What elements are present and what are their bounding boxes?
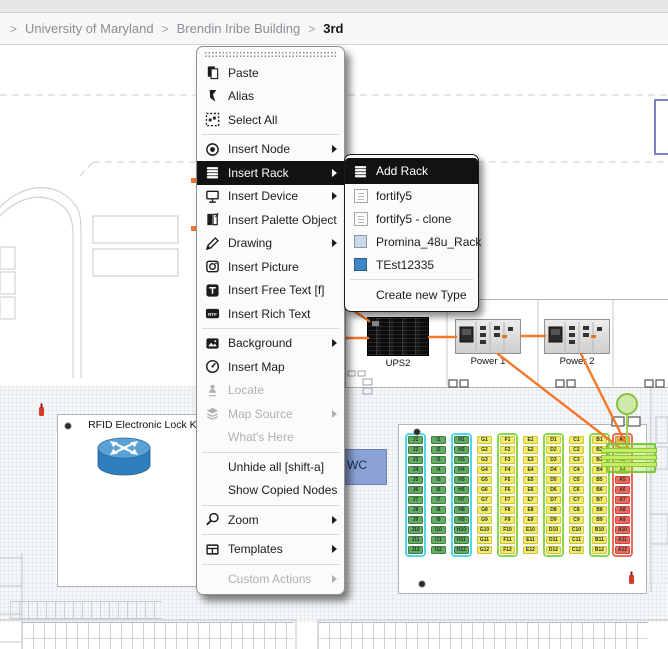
layers-icon bbox=[205, 406, 220, 421]
person-pin-icon bbox=[205, 383, 220, 398]
rack-cell[interactable]: C9 bbox=[569, 516, 584, 524]
no-icon bbox=[205, 483, 220, 498]
submenu-arrow-icon bbox=[332, 575, 337, 583]
rack-cell[interactable]: A12 bbox=[615, 546, 630, 554]
rack-cell[interactable]: D12 bbox=[546, 546, 561, 554]
rack-cell[interactable]: A8 bbox=[615, 506, 630, 514]
menu-separator bbox=[202, 564, 339, 565]
rack-cell[interactable]: E10 bbox=[523, 526, 538, 534]
rack-cell[interactable]: E7 bbox=[523, 496, 538, 504]
rack-cell[interactable]: C6 bbox=[569, 486, 584, 494]
rack-cell[interactable]: E12 bbox=[523, 546, 538, 554]
test-image-icon bbox=[353, 188, 368, 203]
color-swatch-icon bbox=[353, 257, 368, 272]
rack-column-H[interactable]: H1H2H3H4H5H6H7H8H9H10H11H12 bbox=[451, 433, 472, 557]
menu-item-insert-picture[interactable]: Insert Picture bbox=[197, 255, 344, 279]
breadcrumb-item-floor[interactable]: 3rd bbox=[323, 21, 343, 36]
rack-cell[interactable]: H4 bbox=[454, 466, 469, 474]
rack-cell[interactable]: I3 bbox=[431, 456, 446, 464]
rack-cell[interactable]: F4 bbox=[500, 466, 515, 474]
insert-rack-submenu: Add Rack fortify5 fortify5 - clone Promi… bbox=[344, 154, 479, 312]
rack-cell[interactable]: I6 bbox=[431, 486, 446, 494]
rack-cell[interactable]: I12 bbox=[431, 546, 446, 554]
menu-item-background[interactable]: Background bbox=[197, 332, 344, 356]
rack-cell[interactable]: B8 bbox=[592, 506, 607, 514]
rack-cell[interactable]: J11 bbox=[408, 536, 423, 544]
text-icon bbox=[205, 283, 220, 298]
menu-item-templates[interactable]: Templates bbox=[197, 538, 344, 562]
rack-cell[interactable]: B6 bbox=[592, 486, 607, 494]
rack-cell[interactable]: G11 bbox=[477, 536, 492, 544]
compass-icon bbox=[205, 359, 220, 374]
rack-cell[interactable]: F5 bbox=[500, 476, 515, 484]
device-power1[interactable] bbox=[455, 319, 521, 354]
submenu-arrow-icon bbox=[332, 516, 337, 524]
rack-cell[interactable]: D1 bbox=[546, 436, 561, 444]
rack-cell[interactable]: C7 bbox=[569, 496, 584, 504]
menu-item-insert-palette-object[interactable]: Insert Palette Object bbox=[197, 208, 344, 232]
rack-column-I[interactable]: I1I2I3I4I5I6I7I8I9I10I11I12 bbox=[428, 433, 449, 557]
rack-cell[interactable]: E2 bbox=[523, 446, 538, 454]
desk-band bbox=[22, 622, 294, 649]
menu-drag-handle[interactable] bbox=[204, 51, 337, 58]
rack-cell[interactable]: G2 bbox=[477, 446, 492, 454]
menu-item-locate: Locate bbox=[197, 379, 344, 403]
submenu-item-fortify5-clone[interactable]: fortify5 - clone bbox=[345, 207, 478, 230]
select-all-icon bbox=[205, 112, 220, 127]
menu-item-show-copied-nodes[interactable]: Show Copied Nodes bbox=[197, 479, 344, 503]
breadcrumb: > University of Maryland > Brendin Iribe… bbox=[0, 13, 668, 45]
menu-item-alias[interactable]: Alias bbox=[197, 85, 344, 109]
rack-cell[interactable]: H11 bbox=[454, 536, 469, 544]
rack-cell[interactable]: B11 bbox=[592, 536, 607, 544]
rack-cell[interactable]: G9 bbox=[477, 516, 492, 524]
rack-cell[interactable]: I1 bbox=[431, 436, 446, 444]
device-power2[interactable] bbox=[544, 319, 610, 354]
rack-cell[interactable]: D8 bbox=[546, 506, 561, 514]
rack-cell[interactable]: J6 bbox=[408, 486, 423, 494]
menu-item-unhide-all[interactable]: Unhide all [shift-a] bbox=[197, 455, 344, 479]
rack-cell[interactable]: F2 bbox=[500, 446, 515, 454]
rack-cell[interactable]: C5 bbox=[569, 476, 584, 484]
rack-cell[interactable]: G1 bbox=[477, 436, 492, 444]
rack-cell[interactable]: H3 bbox=[454, 456, 469, 464]
breadcrumb-chevron-icon: > bbox=[308, 22, 315, 36]
menu-separator bbox=[350, 279, 473, 280]
rack-cell[interactable]: D4 bbox=[546, 466, 561, 474]
window-icon bbox=[205, 542, 220, 557]
rack-cell[interactable]: H2 bbox=[454, 446, 469, 454]
alias-icon bbox=[205, 89, 220, 104]
breadcrumb-item-site[interactable]: University of Maryland bbox=[25, 21, 154, 36]
image-icon bbox=[205, 336, 220, 351]
rack-cell[interactable]: G3 bbox=[477, 456, 492, 464]
test-image-icon bbox=[353, 211, 368, 226]
rack-cell[interactable]: J1 bbox=[408, 436, 423, 444]
rack-cell[interactable]: E11 bbox=[523, 536, 538, 544]
menu-separator bbox=[202, 328, 339, 329]
rack-cell[interactable]: H1 bbox=[454, 436, 469, 444]
submenu-arrow-icon bbox=[332, 339, 337, 347]
rack-cell[interactable]: H10 bbox=[454, 526, 469, 534]
menu-item-drawing[interactable]: Drawing bbox=[197, 232, 344, 256]
no-icon bbox=[205, 571, 220, 586]
rack-cell[interactable]: C2 bbox=[569, 446, 584, 454]
rack-cell[interactable]: G5 bbox=[477, 476, 492, 484]
rack-column-D[interactable]: D1D2D3D4D5D6D7D8D9D10D11D12 bbox=[543, 433, 564, 557]
device-ups[interactable] bbox=[367, 317, 429, 356]
device-label: UPS2 bbox=[367, 358, 429, 369]
menu-separator bbox=[202, 134, 339, 135]
locker-row bbox=[10, 601, 162, 619]
rack-cell[interactable]: I11 bbox=[431, 536, 446, 544]
rack-cell[interactable]: C3 bbox=[569, 456, 584, 464]
rack-cell[interactable]: C10 bbox=[569, 526, 584, 534]
ups-display bbox=[372, 321, 379, 326]
rack-cell[interactable]: H9 bbox=[454, 516, 469, 524]
device-icon bbox=[205, 189, 220, 204]
power-panel-art bbox=[545, 320, 609, 353]
rack-cell[interactable]: B4 bbox=[592, 466, 607, 474]
no-icon bbox=[353, 288, 368, 303]
rack-grid: J1J2J3J4J5J6J7J8J9J10J11J12I1I2I3I4I5I6I… bbox=[405, 433, 633, 557]
rack-cell[interactable]: G12 bbox=[477, 546, 492, 554]
rack-cell[interactable]: F1 bbox=[500, 436, 515, 444]
submenu-item-add-rack[interactable]: Add Rack bbox=[345, 158, 478, 184]
rack-icon bbox=[205, 165, 220, 180]
rack-cell[interactable]: F3 bbox=[500, 456, 515, 464]
rack-cell[interactable]: C8 bbox=[569, 506, 584, 514]
submenu-arrow-icon bbox=[332, 239, 337, 247]
rack-cell[interactable]: G6 bbox=[477, 486, 492, 494]
rack-cell[interactable]: D11 bbox=[546, 536, 561, 544]
menu-item-insert-device[interactable]: Insert Device bbox=[197, 185, 344, 209]
rack-cell[interactable]: H8 bbox=[454, 506, 469, 514]
rack-cell[interactable]: D10 bbox=[546, 526, 561, 534]
rack-cell[interactable]: B5 bbox=[592, 476, 607, 484]
rack-cell[interactable]: J9 bbox=[408, 516, 423, 524]
rack-cell[interactable]: G7 bbox=[477, 496, 492, 504]
rack-cell[interactable]: D6 bbox=[546, 486, 561, 494]
submenu-item-test12335[interactable]: TEst12335 bbox=[345, 253, 478, 276]
rack-cell[interactable]: I4 bbox=[431, 466, 446, 474]
rack-cell[interactable]: B10 bbox=[592, 526, 607, 534]
menu-item-insert-free-text[interactable]: Insert Free Text [f] bbox=[197, 279, 344, 303]
submenu-arrow-icon bbox=[332, 410, 337, 418]
router-icon[interactable] bbox=[92, 432, 156, 486]
rack-cell[interactable]: F9 bbox=[500, 516, 515, 524]
menu-item-insert-rich-text[interactable]: RTF Insert Rich Text bbox=[197, 302, 344, 326]
paste-icon bbox=[205, 65, 220, 80]
rtf-icon: RTF bbox=[205, 306, 220, 321]
menu-separator bbox=[202, 534, 339, 535]
rack-cell[interactable]: D9 bbox=[546, 516, 561, 524]
rack-cell[interactable]: G4 bbox=[477, 466, 492, 474]
submenu-item-create-new-type[interactable]: Create new Type bbox=[345, 282, 478, 308]
node-icon bbox=[205, 142, 220, 157]
rack-column-J[interactable]: J1J2J3J4J5J6J7J8J9J10J11J12 bbox=[405, 433, 426, 557]
menu-item-zoom[interactable]: Zoom bbox=[197, 508, 344, 532]
submenu-arrow-icon bbox=[332, 545, 337, 553]
rack-cell[interactable]: A5 bbox=[615, 476, 630, 484]
palette-icon bbox=[205, 212, 220, 227]
rack-cell[interactable]: I7 bbox=[431, 496, 446, 504]
menu-item-whats-here: What's Here bbox=[197, 426, 344, 450]
rack-icon bbox=[353, 164, 368, 179]
rack-cell[interactable]: J12 bbox=[408, 546, 423, 554]
rack-cell[interactable]: B12 bbox=[592, 546, 607, 554]
menu-item-insert-map[interactable]: Insert Map bbox=[197, 355, 344, 379]
rack-cell[interactable]: A10 bbox=[615, 526, 630, 534]
submenu-arrow-icon bbox=[332, 192, 337, 200]
rack-column-F[interactable]: F1F2F3F4F5F6F7F8F9F10F11F12 bbox=[497, 433, 518, 557]
rack-cell[interactable]: H5 bbox=[454, 476, 469, 484]
rack-cell[interactable]: C1 bbox=[569, 436, 584, 444]
device-label: Power 1 bbox=[455, 356, 521, 367]
rack-cell[interactable]: I10 bbox=[431, 526, 446, 534]
menu-separator bbox=[202, 505, 339, 506]
context-menu: Paste Alias Select All Insert Node Inser… bbox=[196, 46, 345, 595]
rack-cell[interactable]: C12 bbox=[569, 546, 584, 554]
rack-cell[interactable]: J10 bbox=[408, 526, 423, 534]
rack-cell[interactable]: I5 bbox=[431, 476, 446, 484]
menu-item-select-all[interactable]: Select All bbox=[197, 108, 344, 132]
rack-cell[interactable]: D5 bbox=[546, 476, 561, 484]
color-swatch-icon bbox=[353, 234, 368, 249]
no-icon bbox=[205, 430, 220, 445]
rack-cell[interactable]: F8 bbox=[500, 506, 515, 514]
rack-cell[interactable]: A6 bbox=[615, 486, 630, 494]
rack-cell[interactable]: B9 bbox=[592, 516, 607, 524]
rack-cell[interactable]: D7 bbox=[546, 496, 561, 504]
rack-cell[interactable]: J4 bbox=[408, 466, 423, 474]
rack-cell[interactable]: C4 bbox=[569, 466, 584, 474]
rack-cell[interactable]: C11 bbox=[569, 536, 584, 544]
rack-column-E[interactable]: E1E2E3E4E5E6E7E8E9E10E11E12 bbox=[520, 433, 541, 557]
selection-drag-handle[interactable] bbox=[616, 393, 638, 415]
rack-cell[interactable]: H7 bbox=[454, 496, 469, 504]
submenu-item-promina-rack[interactable]: Promina_48u_Rack bbox=[345, 230, 478, 253]
rack-cell[interactable]: E4 bbox=[523, 466, 538, 474]
rack-cell[interactable]: J5 bbox=[408, 476, 423, 484]
rack-cell[interactable]: E3 bbox=[523, 456, 538, 464]
rack-cell[interactable]: G10 bbox=[477, 526, 492, 534]
magnifier-icon bbox=[205, 512, 220, 527]
menu-item-insert-node[interactable]: Insert Node bbox=[197, 138, 344, 162]
rack-cell[interactable]: F10 bbox=[500, 526, 515, 534]
device-label: Power 2 bbox=[544, 356, 610, 367]
rack-cell[interactable]: J7 bbox=[408, 496, 423, 504]
rack-cell[interactable]: E9 bbox=[523, 516, 538, 524]
rack-cell[interactable]: J3 bbox=[408, 456, 423, 464]
wc-room-label: WC bbox=[347, 458, 367, 472]
menu-item-map-source: Map Source bbox=[197, 402, 344, 426]
menu-separator bbox=[202, 452, 339, 453]
breadcrumb-item-building[interactable]: Brendin Iribe Building bbox=[177, 21, 301, 36]
rack-cell[interactable]: G8 bbox=[477, 506, 492, 514]
breadcrumb-chevron-icon: > bbox=[10, 22, 17, 36]
rack-cell[interactable]: D3 bbox=[546, 456, 561, 464]
rack-cell[interactable]: A7 bbox=[615, 496, 630, 504]
rack-cell[interactable]: F11 bbox=[500, 536, 515, 544]
rack-cell[interactable]: F6 bbox=[500, 486, 515, 494]
rack-cell[interactable]: I2 bbox=[431, 446, 446, 454]
rack-cell[interactable]: E8 bbox=[523, 506, 538, 514]
rack-column-G[interactable]: G1G2G3G4G5G6G7G8G9G10G11G12 bbox=[474, 433, 495, 557]
submenu-item-fortify5[interactable]: fortify5 bbox=[345, 184, 478, 207]
rack-cell[interactable]: A11 bbox=[615, 536, 630, 544]
rack-cell[interactable]: D2 bbox=[546, 446, 561, 454]
menu-item-custom-actions: Custom Actions bbox=[197, 567, 344, 591]
selected-rack-bar bbox=[601, 448, 657, 453]
app-window: > University of Maryland > Brendin Iribe… bbox=[0, 0, 668, 649]
rack-cell[interactable]: F7 bbox=[500, 496, 515, 504]
rack-cell[interactable]: J2 bbox=[408, 446, 423, 454]
no-icon bbox=[205, 459, 220, 474]
svg-text:RTF: RTF bbox=[208, 312, 217, 317]
selected-rack-bar bbox=[601, 455, 657, 460]
breadcrumb-chevron-icon: > bbox=[162, 22, 169, 36]
power-panel-art bbox=[456, 320, 520, 353]
rack-column-C[interactable]: C1C2C3C4C5C6C7C8C9C10C11C12 bbox=[566, 433, 587, 557]
submenu-arrow-icon bbox=[332, 169, 337, 177]
rack-cell[interactable]: E5 bbox=[523, 476, 538, 484]
rack-cell[interactable]: E6 bbox=[523, 486, 538, 494]
rack-cell[interactable]: I9 bbox=[431, 516, 446, 524]
rack-cell[interactable]: B1 bbox=[592, 436, 607, 444]
rack-cell[interactable]: B7 bbox=[592, 496, 607, 504]
rack-cell[interactable]: H6 bbox=[454, 486, 469, 494]
rack-cell[interactable]: I8 bbox=[431, 506, 446, 514]
rack-cell[interactable]: E1 bbox=[523, 436, 538, 444]
rack-cell[interactable]: J8 bbox=[408, 506, 423, 514]
pencil-icon bbox=[205, 236, 220, 251]
menu-item-paste[interactable]: Paste bbox=[197, 61, 344, 85]
window-top-strip bbox=[0, 0, 668, 13]
rack-cell[interactable]: A9 bbox=[615, 516, 630, 524]
selected-rack-bar bbox=[601, 462, 657, 467]
rack-cell[interactable]: F12 bbox=[500, 546, 515, 554]
menu-item-insert-rack[interactable]: Insert Rack bbox=[197, 161, 344, 185]
camera-icon bbox=[205, 259, 220, 274]
submenu-arrow-icon bbox=[332, 145, 337, 153]
desk-band bbox=[318, 622, 648, 649]
rack-cell[interactable]: H12 bbox=[454, 546, 469, 554]
